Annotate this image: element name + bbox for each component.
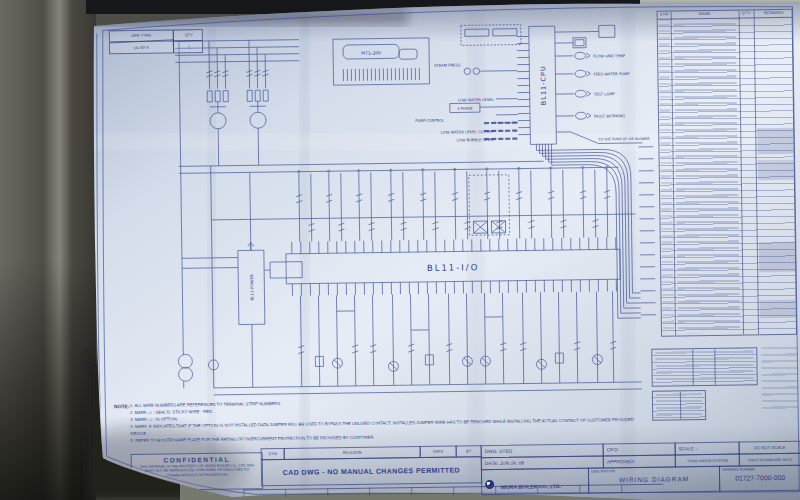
cpu-input-label: LOW WATER LEVEL CUT OFF [441, 129, 495, 135]
legend-table: SYM NAME Q'TY REMARKS [657, 9, 798, 337]
legend-header: NAME [671, 11, 739, 19]
connector-tab [399, 49, 417, 59]
cad-dwg-note: CAD DWG - NO MANUAL CHANGES PERMITTED [261, 456, 482, 486]
cpu-input-label: STEAM PRESS [434, 62, 461, 67]
legend-remark-patch [757, 128, 793, 155]
approval-qty: 1 [173, 40, 203, 54]
approval-table: APP. TYPE QTY UL-60-X 1 [109, 29, 203, 54]
legend-header: SYM [658, 11, 671, 18]
paper-area: MT1-200 BL11-CPU BL11-I/O BL11-POWER STE… [0, 0, 800, 500]
option-box-top [461, 25, 521, 46]
power-label: BL11-POWER [249, 274, 254, 301]
cpu-input-label: LOW BUBBLE LEVEL [456, 137, 495, 143]
mini-table-text-blur [655, 350, 753, 384]
drawing-number-label: DRAWING NUMBER [720, 466, 800, 472]
cpu-input-label: PUMP CONTROL [415, 119, 444, 123]
legend-header: REMARKS [754, 10, 794, 18]
cpu-output-label: TO THE PUMP OF AIR BLOWER [597, 137, 650, 142]
mini-table-text-blur [656, 393, 702, 419]
legend-header: Q'TY [739, 10, 754, 17]
connector-label: MT1-200 [361, 51, 381, 56]
titleblock-number: DRAWING NUMBER 01727-7000-000 [719, 465, 800, 492]
cpu-output-label: TEST LAMP [593, 91, 616, 96]
drawing-sheet: MT1-200 BL11-CPU BL11-I/O BL11-POWER STE… [0, 0, 800, 500]
photo-of-wiring-diagram: MT1-200 BL11-CPU BL11-I/O BL11-POWER STE… [0, 0, 800, 500]
cpu-output-label: FEED WATER PUMP [593, 71, 630, 77]
panel-left-shadow [0, 260, 96, 500]
legend-remark-patch [760, 300, 796, 319]
side-text-blur [761, 347, 798, 411]
cpu-output-label: FAULT WORKING [594, 113, 625, 118]
drawing-number-value: 01727-7000-000 [720, 474, 800, 482]
cpu-output-label: FLOW AND TEMP [593, 53, 626, 58]
legend-remark-patch [759, 242, 795, 272]
legend-text-blur [674, 23, 740, 334]
io-label: BL11-I/O [427, 262, 480, 273]
cpu-label: BL11-CPU [539, 65, 548, 105]
description-label: DESCRIPTION: [589, 467, 719, 474]
mini-table-a [651, 347, 758, 386]
approval-value: UL-60-X [109, 39, 175, 54]
mini-table-b [652, 390, 706, 421]
notes-list: 1. ALL WIRE NUMBERS ARE REFERENCED TO TE… [130, 395, 636, 444]
notes-label: NOTE: [114, 403, 130, 409]
legend-remark-patch [758, 160, 794, 181]
cpu-input-label: 3 PHASE [457, 107, 473, 111]
cpu-input-label: LOW WATER LEVEL [458, 97, 495, 103]
description-value: WIRING DIAGRAM [589, 475, 719, 484]
